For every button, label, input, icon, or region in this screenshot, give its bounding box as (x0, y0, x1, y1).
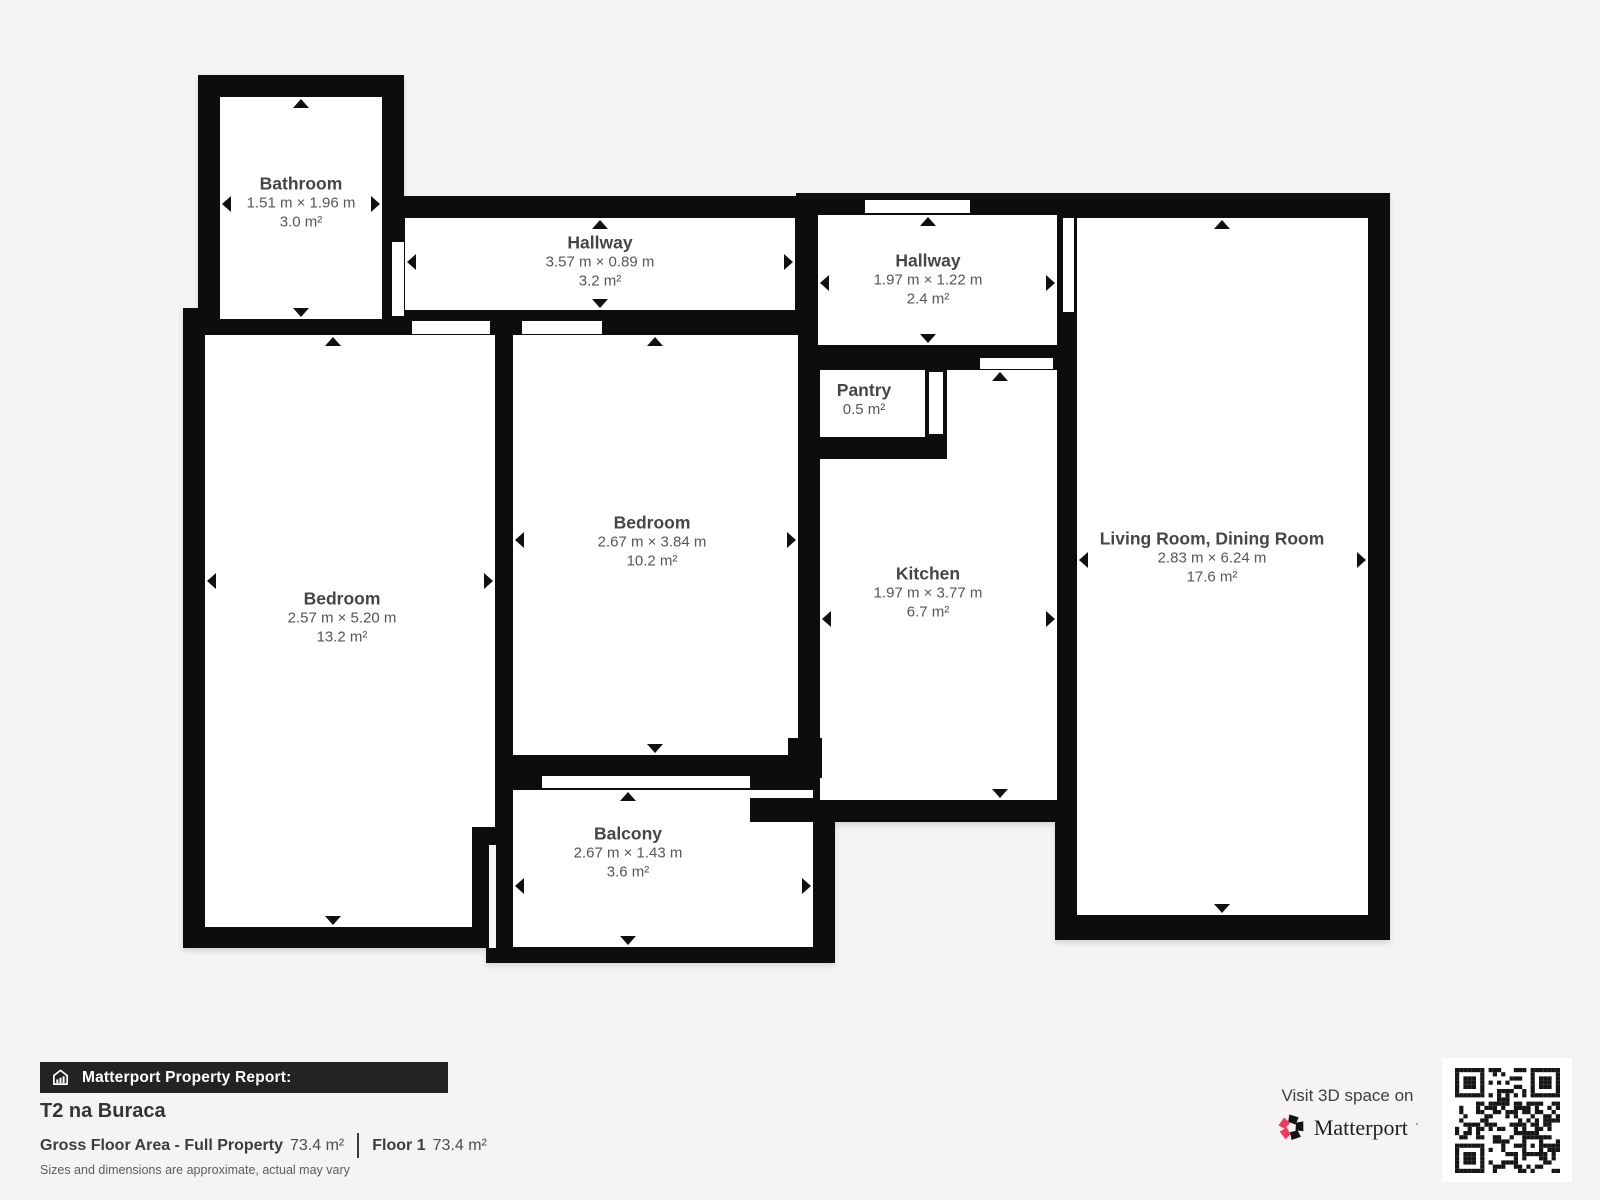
dimension-arrow-left-icon (407, 254, 416, 270)
room-name: Kitchen (874, 565, 983, 584)
metrics-divider (357, 1133, 359, 1158)
dimension-arrow-up-icon (992, 372, 1008, 381)
floor-plan-annotations: Bathroom 1.51 m × 1.96 m 3.0 m² Hallway … (0, 0, 1600, 1200)
room-label-bathroom: Bathroom 1.51 m × 1.96 m 3.0 m² (247, 175, 356, 232)
dimension-arrow-down-icon (620, 936, 636, 945)
report-bar-label: Matterport Property Report: (82, 1069, 292, 1087)
dimension-arrow-down-icon (992, 789, 1008, 798)
dimension-arrow-down-icon (293, 308, 309, 317)
room-name: Pantry (837, 381, 891, 400)
dimension-arrow-right-icon (371, 196, 380, 212)
property-name: T2 na Buraca (40, 1100, 166, 1123)
dimension-arrow-right-icon (1357, 552, 1366, 568)
room-name: Living Room, Dining Room (1100, 530, 1325, 549)
room-area: 2.4 m² (874, 290, 983, 309)
dimension-arrow-down-icon (647, 744, 663, 753)
trademark-tick: ’ (1416, 1122, 1418, 1133)
room-label-hallway-top: Hallway 3.57 m × 0.89 m 3.2 m² (546, 234, 655, 291)
dimension-arrow-up-icon (1214, 220, 1230, 229)
floor-label: Floor 1 (372, 1137, 425, 1155)
room-area: 3.0 m² (247, 213, 356, 232)
room-area: 6.7 m² (874, 603, 983, 622)
room-dimensions: 1.51 m × 1.96 m (247, 194, 356, 213)
dimension-arrow-down-icon (920, 334, 936, 343)
dimension-arrow-up-icon (325, 337, 341, 346)
room-area: 3.2 m² (546, 272, 655, 291)
visit-3d-space-cta[interactable]: Visit 3D space on Matterport ’ (1240, 1086, 1455, 1142)
matterport-logo: Matterport ’ (1277, 1113, 1418, 1142)
property-house-icon (51, 1068, 70, 1087)
dimension-arrow-right-icon (484, 573, 493, 589)
floor-value: 73.4 m² (433, 1137, 487, 1155)
room-label-balcony: Balcony 2.67 m × 1.43 m 3.6 m² (574, 825, 683, 882)
dimension-arrow-right-icon (784, 254, 793, 270)
dimension-arrow-up-icon (620, 792, 636, 801)
gross-floor-area-label: Gross Floor Area - Full Property (40, 1137, 283, 1155)
dimension-arrow-left-icon (207, 573, 216, 589)
room-area: 0.5 m² (837, 400, 891, 419)
room-dimensions: 2.67 m × 3.84 m (598, 533, 707, 552)
dimension-arrow-left-icon (820, 275, 829, 291)
room-name: Bedroom (598, 514, 707, 533)
room-name: Hallway (546, 234, 655, 253)
room-label-living-room: Living Room, Dining Room 2.83 m × 6.24 m… (1100, 530, 1325, 587)
dimension-arrow-right-icon (1046, 611, 1055, 627)
dimension-arrow-up-icon (592, 220, 608, 229)
dimension-arrow-left-icon (515, 532, 524, 548)
dimension-arrow-right-icon (802, 878, 811, 894)
room-dimensions: 1.97 m × 3.77 m (874, 584, 983, 603)
room-label-hallway-entry: Hallway 1.97 m × 1.22 m 2.4 m² (874, 252, 983, 309)
dimension-arrow-down-icon (1214, 904, 1230, 913)
disclaimer-text: Sizes and dimensions are approximate, ac… (40, 1163, 350, 1177)
room-label-bedroom-left: Bedroom 2.57 m × 5.20 m 13.2 m² (288, 590, 397, 647)
room-name: Bathroom (247, 175, 356, 194)
property-report-page: Bathroom 1.51 m × 1.96 m 3.0 m² Hallway … (0, 0, 1600, 1200)
qr-code[interactable] (1442, 1058, 1572, 1182)
dimension-arrow-up-icon (293, 99, 309, 108)
room-dimensions: 2.57 m × 5.20 m (288, 609, 397, 628)
room-label-kitchen: Kitchen 1.97 m × 3.77 m 6.7 m² (874, 565, 983, 622)
room-label-pantry: Pantry 0.5 m² (837, 381, 891, 419)
dimension-arrow-down-icon (592, 299, 608, 308)
dimension-arrow-left-icon (822, 611, 831, 627)
room-name: Bedroom (288, 590, 397, 609)
room-name: Balcony (574, 825, 683, 844)
room-area: 10.2 m² (598, 552, 707, 571)
room-dimensions: 1.97 m × 1.22 m (874, 271, 983, 290)
dimension-arrow-left-icon (222, 196, 231, 212)
matterport-wordmark: Matterport (1314, 1115, 1408, 1141)
dimension-arrow-left-icon (515, 878, 524, 894)
room-area: 17.6 m² (1100, 568, 1325, 587)
gross-floor-area-value: 73.4 m² (290, 1137, 344, 1155)
report-title-bar: Matterport Property Report: (40, 1062, 448, 1093)
dimension-arrow-right-icon (787, 532, 796, 548)
visit-3d-space-text: Visit 3D space on (1282, 1086, 1414, 1106)
dimension-arrow-up-icon (647, 337, 663, 346)
room-name: Hallway (874, 252, 983, 271)
room-dimensions: 2.83 m × 6.24 m (1100, 549, 1325, 568)
dimension-arrow-down-icon (325, 916, 341, 925)
room-dimensions: 2.67 m × 1.43 m (574, 844, 683, 863)
dimension-arrow-right-icon (1046, 275, 1055, 291)
matterport-pinwheel-icon (1277, 1113, 1306, 1142)
room-area: 13.2 m² (288, 628, 397, 647)
dimension-arrow-left-icon (1079, 552, 1088, 568)
room-dimensions: 3.57 m × 0.89 m (546, 253, 655, 272)
floor-area-metrics: Gross Floor Area - Full Property 73.4 m²… (40, 1133, 487, 1158)
room-area: 3.6 m² (574, 863, 683, 882)
room-label-bedroom-mid: Bedroom 2.67 m × 3.84 m 10.2 m² (598, 514, 707, 571)
dimension-arrow-up-icon (920, 217, 936, 226)
